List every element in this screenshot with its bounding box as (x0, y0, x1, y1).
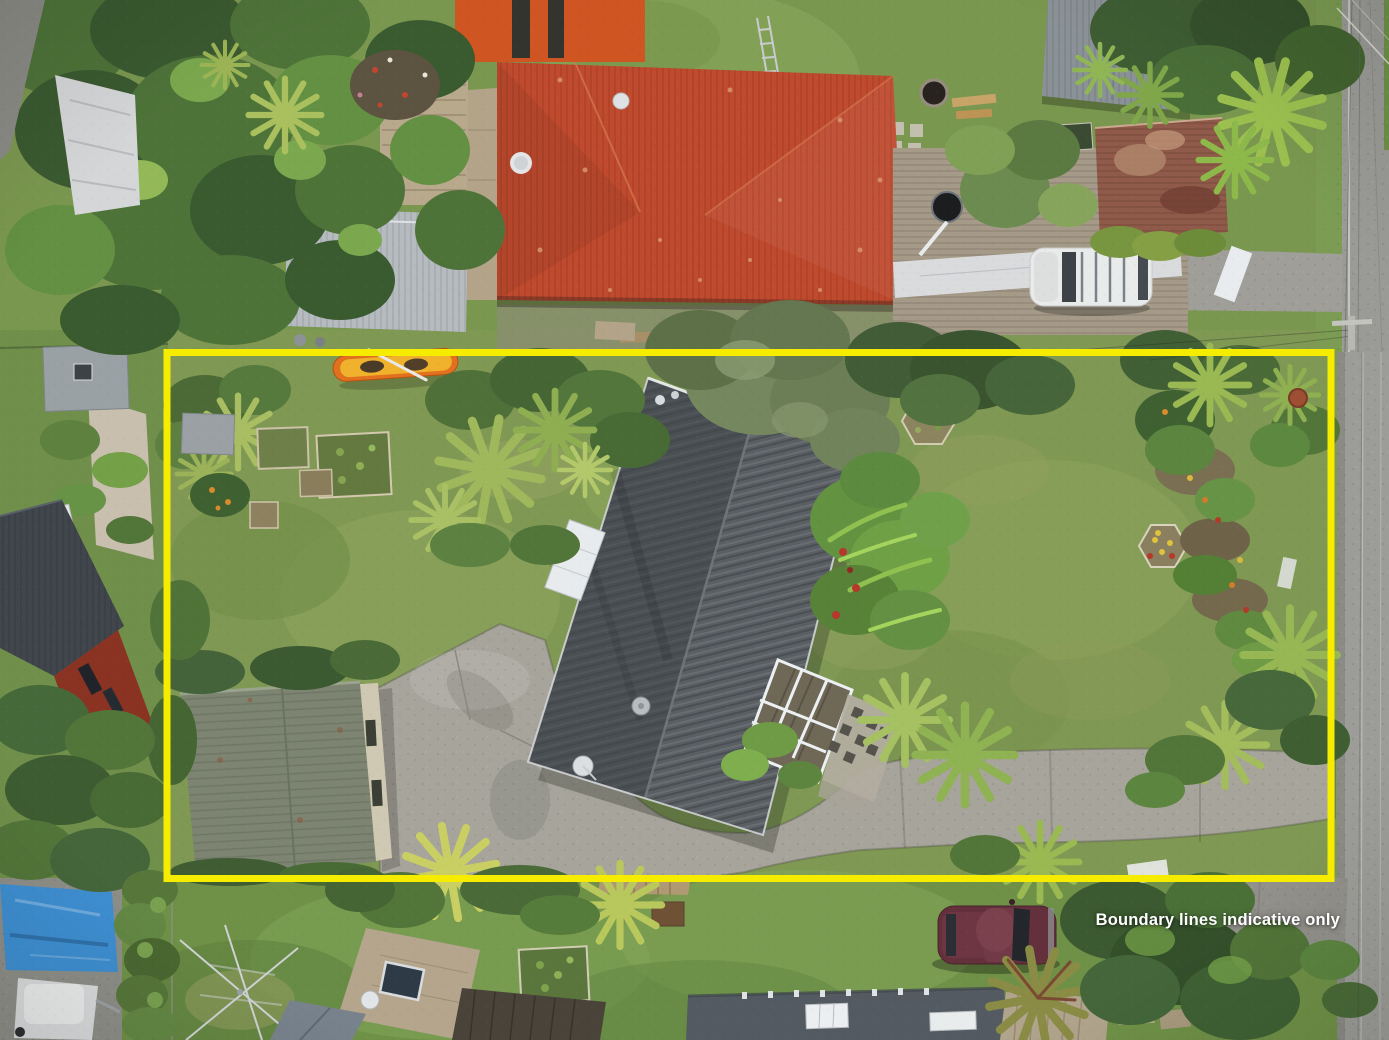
boundary-disclaimer-label: Boundary lines indicative only (1096, 911, 1340, 930)
aerial-photo: Boundary lines indicative only (0, 0, 1389, 1040)
photo-scene (0, 0, 1389, 1040)
